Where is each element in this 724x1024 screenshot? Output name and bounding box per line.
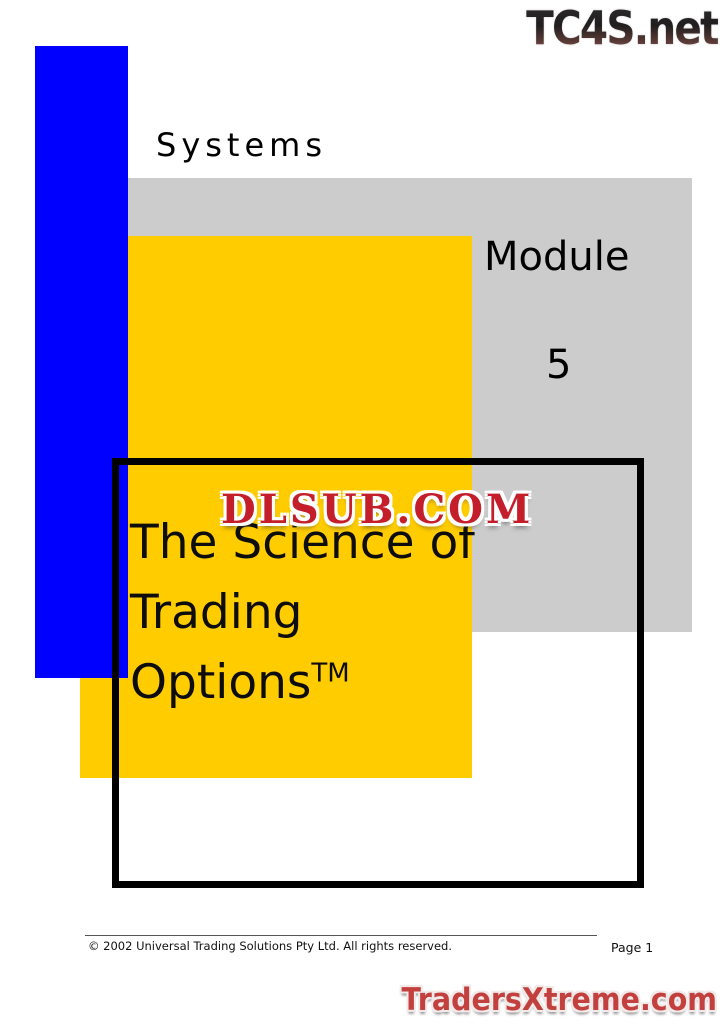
title-line2: Options bbox=[130, 655, 311, 710]
tc4s-site-logo: TC4S.net bbox=[526, 1, 718, 55]
footer-divider-line bbox=[85, 935, 597, 936]
document-title: The Science of Trading OptionsTM bbox=[130, 508, 650, 718]
module-label: Module bbox=[484, 234, 629, 280]
series-kicker: Systems bbox=[156, 126, 327, 164]
footer-copyright: © 2002 Universal Trading Solutions Pty L… bbox=[88, 939, 452, 953]
tradersxtreme-site-logo: TradersXtreme.com bbox=[401, 982, 717, 1018]
title-line1: The Science of Trading bbox=[130, 515, 475, 640]
module-number: 5 bbox=[546, 342, 571, 388]
trademark-superscript: TM bbox=[311, 658, 349, 688]
footer-page-number: Page 1 bbox=[611, 940, 653, 955]
dlsub-watermark: DLSUB.COM bbox=[221, 486, 533, 533]
